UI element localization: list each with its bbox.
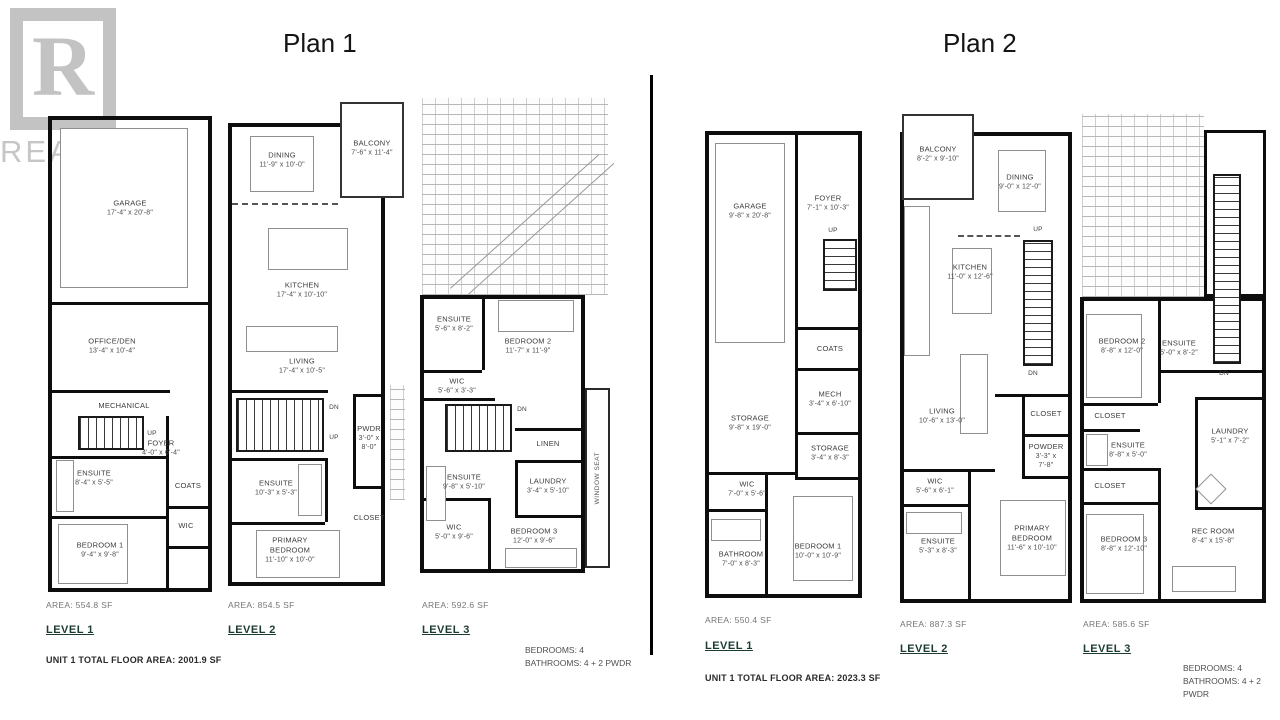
bed bbox=[793, 496, 853, 581]
room-dims: 3'-3" x 7'-8" bbox=[1028, 452, 1064, 470]
room-name: FOYER bbox=[142, 439, 180, 449]
room-dims: 8'-8" x 5'-0" bbox=[1109, 450, 1147, 459]
p1l3-area: AREA: 592.6 SF bbox=[422, 600, 489, 610]
bed bbox=[1086, 514, 1144, 594]
room-name: WIC bbox=[435, 523, 473, 533]
room-name: ENSUITE bbox=[443, 473, 485, 483]
room-name: UP bbox=[828, 227, 837, 235]
room-label-office-den: OFFICE/DEN13'-4" x 10'-4" bbox=[88, 337, 135, 356]
wall bbox=[482, 295, 485, 370]
stairs-dn-label: DN bbox=[329, 404, 339, 412]
wall bbox=[515, 460, 585, 463]
bed bbox=[1086, 314, 1142, 398]
stairs-up-label: UP bbox=[329, 434, 338, 442]
plan2-level2-floorplan: BALCONY8'-2" x 9'-10" DINING9'-0" x 12'-… bbox=[900, 114, 1072, 604]
room-name: DN bbox=[517, 406, 527, 414]
room-label-closet2: CLOSET bbox=[1094, 481, 1125, 491]
room-label-storage2: STORAGE3'-4" x 8'-3" bbox=[811, 444, 849, 463]
room-dims: 7'-1" x 10'-3" bbox=[807, 203, 849, 212]
room-label-bathroom: BATHROOM7'-0" x 8'-3" bbox=[719, 550, 763, 569]
room-label-closet: CLOSET bbox=[1094, 411, 1125, 421]
room-label-wic: WIC5'-6" x 6'-1" bbox=[916, 477, 954, 496]
room-dims: 17'-4" x 10'-5" bbox=[279, 366, 325, 375]
room-label-wic: WIC bbox=[178, 521, 193, 531]
room-label-bedroom1: BEDROOM 110'-0" x 10'-9" bbox=[795, 542, 842, 561]
p2-bedrooms-count: BEDROOMS: 4 bbox=[1183, 662, 1280, 675]
room-label-bedroom2: BEDROOM 28'-8" x 12'-0" bbox=[1099, 337, 1146, 356]
p2-total-area: UNIT 1 TOTAL FLOOR AREA: 2023.3 SF bbox=[705, 673, 881, 683]
wall bbox=[795, 477, 862, 480]
wall bbox=[1022, 476, 1072, 479]
room-label-powder: POWDER3'-3" x 7'-8" bbox=[1028, 442, 1064, 470]
room-dims: 3'-4" x 6'-10" bbox=[809, 399, 851, 408]
room-name: OFFICE/DEN bbox=[88, 337, 135, 347]
room-label-wic: WIC7'-0" x 5'-6" bbox=[728, 480, 766, 499]
room-label-dining: DINING9'-0" x 12'-0" bbox=[999, 173, 1041, 192]
room-label-kitchen: KITCHEN11'-0" x 12'-6" bbox=[947, 263, 993, 282]
wall bbox=[488, 498, 491, 573]
room-dims: 3'-4" x 8'-3" bbox=[811, 453, 849, 462]
bathtub bbox=[298, 464, 322, 516]
room-name: CLOSET bbox=[1094, 481, 1125, 491]
room-name: ENSUITE bbox=[75, 469, 113, 479]
room-name: BEDROOM 2 bbox=[505, 337, 552, 347]
wall bbox=[166, 546, 212, 549]
room-dims: 9'-0" x 12'-0" bbox=[999, 182, 1041, 191]
room-dims: 7'-6" x 11'-4" bbox=[351, 148, 392, 157]
room-dims: 8'-4" x 15'-8" bbox=[1192, 536, 1235, 545]
wall bbox=[228, 458, 325, 461]
room-name: BALCONY bbox=[917, 145, 959, 155]
bathtub bbox=[1086, 434, 1108, 466]
stairs bbox=[1023, 240, 1053, 366]
plan2-level1-floorplan: GARAGE9'-8" x 20'-8" FOYER7'-1" x 10'-3"… bbox=[705, 131, 862, 598]
room-dims: 8'-4" x 5'-5" bbox=[75, 478, 113, 487]
sofa bbox=[246, 326, 338, 352]
room-dims: 8'-8" x 12'-10" bbox=[1101, 544, 1148, 553]
room-name: UP bbox=[329, 434, 338, 442]
wall bbox=[515, 428, 585, 431]
wall bbox=[795, 368, 862, 371]
p1-total-area: UNIT 1 TOTAL FLOOR AREA: 2001.9 SF bbox=[46, 655, 222, 665]
p2l3-level: LEVEL 3 bbox=[1083, 643, 1131, 655]
wall bbox=[228, 390, 328, 393]
stairs-dn-label: DN bbox=[1028, 370, 1038, 378]
wall bbox=[353, 394, 385, 397]
p2l2-area: AREA: 887.3 SF bbox=[900, 619, 967, 629]
room-dims: 10'-6" x 13'-0" bbox=[919, 416, 965, 425]
plan1-level3-floorplan: WINDOW SEAT ENSUITE5'-6" x 8'-2" BEDROOM… bbox=[420, 98, 612, 590]
sofa bbox=[1172, 566, 1236, 592]
room-name: UP bbox=[1033, 226, 1042, 234]
p2-summary: BEDROOMS: 4 BATHROOMS: 4 + 2 PWDR bbox=[1183, 662, 1280, 702]
room-label-living: LIVING17'-4" x 10'-5" bbox=[279, 357, 325, 376]
room-name: COATS bbox=[817, 344, 843, 354]
dashed-partition bbox=[958, 235, 1020, 237]
room-dims: 5'-0" x 8'-2" bbox=[1160, 348, 1198, 357]
room-name: BEDROOM 1 bbox=[77, 541, 124, 551]
room-dims: 10'-0" x 10'-9" bbox=[795, 551, 842, 560]
wall bbox=[1195, 507, 1266, 510]
p1l2-level: LEVEL 2 bbox=[228, 624, 276, 636]
wall bbox=[515, 515, 585, 518]
room-name: DN bbox=[1219, 370, 1229, 378]
roof-hatch bbox=[422, 98, 608, 295]
room-name: DN bbox=[329, 404, 339, 412]
room-name: ENSUITE bbox=[919, 537, 957, 547]
stairs bbox=[823, 239, 857, 291]
bed bbox=[505, 548, 577, 568]
room-dims: 5'-6" x 8'-2" bbox=[435, 324, 473, 333]
stairs-dn-label: DN bbox=[1219, 370, 1229, 378]
room-dims: 5'-6" x 6'-1" bbox=[916, 486, 954, 495]
room-dims: 11'-9" x 10'-0" bbox=[259, 160, 305, 169]
p2l3-area: AREA: 585.6 SF bbox=[1083, 619, 1150, 629]
room-label-mechanical: MECHANICAL bbox=[98, 401, 149, 411]
room-name: FOYER bbox=[807, 194, 849, 204]
stairs-up-label: UP bbox=[1033, 226, 1042, 234]
stairs bbox=[78, 416, 144, 450]
room-name: POWDER bbox=[1028, 442, 1064, 452]
wall bbox=[166, 506, 212, 509]
room-label-closet: CLOSET bbox=[353, 513, 384, 523]
room-name: GARAGE bbox=[107, 199, 153, 209]
wall bbox=[515, 460, 518, 515]
room-label-wic2: WIC5'-0" x 9'-6" bbox=[435, 523, 473, 542]
room-dims: 11'-6" x 10'-10" bbox=[1001, 543, 1063, 552]
wall bbox=[228, 522, 325, 525]
room-name: WIC bbox=[178, 521, 193, 531]
wall bbox=[1080, 429, 1140, 432]
plan1-level2-floorplan: DINING11'-9" x 10'-0" BALCONY7'-6" x 11'… bbox=[228, 98, 406, 590]
room-label-ensuite: ENSUITE5'-3" x 8'-3" bbox=[919, 537, 957, 556]
room-name: DN bbox=[1028, 370, 1038, 378]
room-name: STORAGE bbox=[729, 414, 771, 424]
room-dims: 10'-3" x 5'-3" bbox=[255, 488, 297, 497]
room-label-dining: DINING11'-9" x 10'-0" bbox=[259, 151, 305, 170]
p1l1-level: LEVEL 1 bbox=[46, 624, 94, 636]
room-dims: 17'-4" x 20'-8" bbox=[107, 208, 153, 217]
room-name: MECH bbox=[809, 390, 851, 400]
room-label-mech: MECH3'-4" x 6'-10" bbox=[809, 390, 851, 409]
room-label-balcony: BALCONY7'-6" x 11'-4" bbox=[351, 139, 392, 158]
wall bbox=[1158, 370, 1266, 373]
room-dims: 4'-0" x 6'-4" bbox=[142, 448, 180, 457]
room-name: BEDROOM 3 bbox=[511, 527, 558, 537]
p2l1-area: AREA: 550.4 SF bbox=[705, 615, 772, 625]
room-label-bedroom3: BEDROOM 38'-8" x 12'-10" bbox=[1101, 535, 1148, 554]
wall bbox=[1080, 502, 1158, 505]
plan-divider-line bbox=[650, 75, 653, 655]
room-label-closet: CLOSET bbox=[1030, 409, 1061, 419]
stairs-dn-label: DN bbox=[517, 406, 527, 414]
room-label-coats: COATS bbox=[175, 481, 201, 491]
plan2-level3-floorplan: BEDROOM 28'-8" x 12'-0" ENSUITE5'-0" x 8… bbox=[1080, 114, 1270, 606]
room-dims: 12'-0" x 9'-6" bbox=[511, 536, 558, 545]
room-label-living: LIVING10'-6" x 13'-0" bbox=[919, 407, 965, 426]
room-label-laundry: LAUNDRY3'-4" x 5'-10" bbox=[527, 477, 569, 496]
room-label-pwdr: PWDR3'-0" x 8'-0" bbox=[354, 424, 384, 452]
room-name: LINEN bbox=[536, 439, 559, 449]
room-label-primary-bedroom: PRIMARY BEDROOM11'-6" x 10'-10" bbox=[1001, 524, 1063, 553]
stairs bbox=[236, 398, 324, 452]
wall bbox=[48, 516, 166, 519]
wall bbox=[1158, 468, 1161, 603]
garage-slab bbox=[715, 143, 785, 343]
kitchen-island bbox=[268, 228, 348, 270]
room-dims: 11'-7" x 11'-9" bbox=[505, 346, 552, 355]
wall bbox=[900, 469, 995, 472]
wall bbox=[795, 131, 798, 477]
room-label-primary-bedroom: PRIMARY BEDROOM11'-10" x 10'-0" bbox=[257, 536, 323, 565]
room-dims: 5'-0" x 9'-6" bbox=[435, 532, 473, 541]
p1-bathrooms-count: BATHROOMS: 4 + 2 PWDR bbox=[525, 657, 631, 670]
room-name: LAUNDRY bbox=[1211, 427, 1249, 437]
room-label-coats: COATS bbox=[817, 344, 843, 354]
room-name: LIVING bbox=[279, 357, 325, 367]
room-label-balcony: BALCONY8'-2" x 9'-10" bbox=[917, 145, 959, 164]
room-name: ENSUITE bbox=[1109, 441, 1147, 451]
room-label-ensuite2: ENSUITE9'-8" x 5'-10" bbox=[443, 473, 485, 492]
p2l2-level: LEVEL 2 bbox=[900, 643, 948, 655]
room-label-wic: WIC5'-6" x 3'-3" bbox=[438, 377, 476, 396]
room-label-foyer: FOYER7'-1" x 10'-3" bbox=[807, 194, 849, 213]
room-name: ENSUITE bbox=[435, 315, 473, 325]
room-label-bedroom1: BEDROOM 19'-4" x 9'-8" bbox=[77, 541, 124, 560]
p1l3-level: LEVEL 3 bbox=[422, 624, 470, 636]
wall bbox=[1080, 468, 1158, 471]
wall bbox=[1080, 403, 1158, 406]
bathtub bbox=[711, 519, 761, 541]
room-label-ensuite: ENSUITE8'-4" x 5'-5" bbox=[75, 469, 113, 488]
room-dims: 7'-0" x 8'-3" bbox=[719, 559, 763, 568]
plan1-level1-floorplan: GARAGE17'-4" x 20'-8" OFFICE/DEN13'-4" x… bbox=[48, 116, 212, 592]
room-dims: 11'-10" x 10'-0" bbox=[257, 555, 323, 564]
room-name: CLOSET bbox=[353, 513, 384, 523]
room-name: WIC bbox=[916, 477, 954, 487]
wall bbox=[420, 398, 495, 401]
masonry-strip bbox=[390, 385, 405, 500]
room-label-ensuite2: ENSUITE8'-8" x 5'-0" bbox=[1109, 441, 1147, 460]
wall bbox=[48, 390, 170, 393]
window-seat-label: WINDOW SEAT bbox=[594, 452, 601, 504]
bed bbox=[498, 300, 574, 332]
wall bbox=[48, 302, 212, 305]
realtor-logo: R bbox=[10, 8, 116, 130]
room-dims: 13'-4" x 10'-4" bbox=[88, 346, 135, 355]
window-seat: WINDOW SEAT bbox=[585, 388, 610, 568]
bathtub bbox=[906, 512, 962, 534]
room-label-kitchen: KITCHEN17'-4" x 10'-10" bbox=[277, 281, 327, 300]
stairs-up-label: UP bbox=[828, 227, 837, 235]
room-label-linen: LINEN bbox=[536, 439, 559, 449]
floorplan-sheet: { "watermark": { "logo_letter": "R", "te… bbox=[0, 0, 1280, 720]
p1l2-area: AREA: 854.5 SF bbox=[228, 600, 295, 610]
wall bbox=[1022, 434, 1072, 437]
room-dims: 5'-3" x 8'-3" bbox=[919, 546, 957, 555]
p2l1-level: LEVEL 1 bbox=[705, 640, 753, 652]
room-label-ensuite: ENSUITE5'-0" x 8'-2" bbox=[1160, 339, 1198, 358]
room-name: LIVING bbox=[919, 407, 965, 417]
room-name: DINING bbox=[999, 173, 1041, 183]
room-dims: 9'-8" x 5'-10" bbox=[443, 482, 485, 491]
room-dims: 3'-0" x 8'-0" bbox=[354, 434, 384, 452]
room-label-bedroom2: BEDROOM 211'-7" x 11'-9" bbox=[505, 337, 552, 356]
room-name: BEDROOM 2 bbox=[1099, 337, 1146, 347]
room-name: KITCHEN bbox=[277, 281, 327, 291]
room-dims: 9'-4" x 9'-8" bbox=[77, 550, 124, 559]
bathtub bbox=[56, 460, 74, 512]
wall bbox=[995, 394, 1072, 397]
wall bbox=[900, 504, 968, 507]
room-name: REC ROOM bbox=[1192, 527, 1235, 537]
room-label-ensuite: ENSUITE5'-6" x 8'-2" bbox=[435, 315, 473, 334]
room-dims: 8'-2" x 9'-10" bbox=[917, 154, 959, 163]
room-dims: 8'-8" x 12'-0" bbox=[1099, 346, 1146, 355]
room-label-laundry: LAUNDRY5'-1" x 7'-2" bbox=[1211, 427, 1249, 446]
stairs-up-label: UP bbox=[147, 430, 156, 438]
room-name: ENSUITE bbox=[1160, 339, 1198, 349]
wall bbox=[325, 458, 328, 522]
p1-summary: BEDROOMS: 4 BATHROOMS: 4 + 2 PWDR bbox=[525, 644, 631, 670]
room-name: PRIMARY BEDROOM bbox=[257, 536, 323, 556]
room-label-garage: GARAGE9'-8" x 20'-8" bbox=[729, 202, 771, 221]
room-dims: 3'-4" x 5'-10" bbox=[527, 486, 569, 495]
room-name: MECHANICAL bbox=[98, 401, 149, 411]
room-name: BEDROOM 3 bbox=[1101, 535, 1148, 545]
p2-bathrooms-count: BATHROOMS: 4 + 2 PWDR bbox=[1183, 675, 1280, 701]
room-label-storage: STORAGE9'-8" x 19'-0" bbox=[729, 414, 771, 433]
room-dims: 11'-0" x 12'-6" bbox=[947, 272, 993, 281]
room-name: LAUNDRY bbox=[527, 477, 569, 487]
plan1-title: Plan 1 bbox=[283, 28, 357, 59]
wall bbox=[968, 469, 971, 603]
wall bbox=[705, 472, 795, 475]
room-name: WIC bbox=[728, 480, 766, 490]
room-name: ENSUITE bbox=[255, 479, 297, 489]
room-name: BATHROOM bbox=[719, 550, 763, 560]
room-dims: 5'-1" x 7'-2" bbox=[1211, 436, 1249, 445]
room-name: CLOSET bbox=[1030, 409, 1061, 419]
plan2-title: Plan 2 bbox=[943, 28, 1017, 59]
room-label-ensuite: ENSUITE10'-3" x 5'-3" bbox=[255, 479, 297, 498]
room-label-bedroom3: BEDROOM 312'-0" x 9'-6" bbox=[511, 527, 558, 546]
room-label-rec-room: REC ROOM8'-4" x 15'-8" bbox=[1192, 527, 1235, 546]
room-name: DINING bbox=[259, 151, 305, 161]
room-name: CLOSET bbox=[1094, 411, 1125, 421]
room-dims: 9'-8" x 20'-8" bbox=[729, 211, 771, 220]
room-label-garage: GARAGE17'-4" x 20'-8" bbox=[107, 199, 153, 218]
wall bbox=[1195, 397, 1266, 400]
room-name: WIC bbox=[438, 377, 476, 387]
wall bbox=[705, 509, 765, 512]
room-dims: 7'-0" x 5'-6" bbox=[728, 489, 766, 498]
room-name: BEDROOM 1 bbox=[795, 542, 842, 552]
room-name: UP bbox=[147, 430, 156, 438]
wall bbox=[420, 370, 482, 373]
dashed-partition bbox=[232, 203, 338, 205]
p1-bedrooms-count: BEDROOMS: 4 bbox=[525, 644, 631, 657]
wall bbox=[353, 486, 385, 489]
stairs bbox=[445, 404, 512, 452]
wall bbox=[795, 327, 862, 330]
room-name: COATS bbox=[175, 481, 201, 491]
room-dims: 5'-6" x 3'-3" bbox=[438, 386, 476, 395]
room-name: KITCHEN bbox=[947, 263, 993, 273]
wall bbox=[795, 432, 862, 435]
room-name: BALCONY bbox=[351, 139, 392, 149]
realtor-logo-letter: R bbox=[32, 23, 94, 109]
room-dims: 17'-4" x 10'-10" bbox=[277, 290, 327, 299]
kitchen-counter bbox=[904, 206, 930, 356]
room-name: GARAGE bbox=[729, 202, 771, 212]
room-dims: 9'-8" x 19'-0" bbox=[729, 423, 771, 432]
roof-hatch bbox=[1082, 114, 1204, 297]
room-name: STORAGE bbox=[811, 444, 849, 454]
stairs bbox=[1213, 174, 1241, 364]
room-label-foyer: FOYER4'-0" x 6'-4" bbox=[142, 439, 180, 458]
p1l1-area: AREA: 554.8 SF bbox=[46, 600, 113, 610]
room-name: PRIMARY BEDROOM bbox=[1001, 524, 1063, 544]
room-name: PWDR bbox=[354, 424, 384, 434]
